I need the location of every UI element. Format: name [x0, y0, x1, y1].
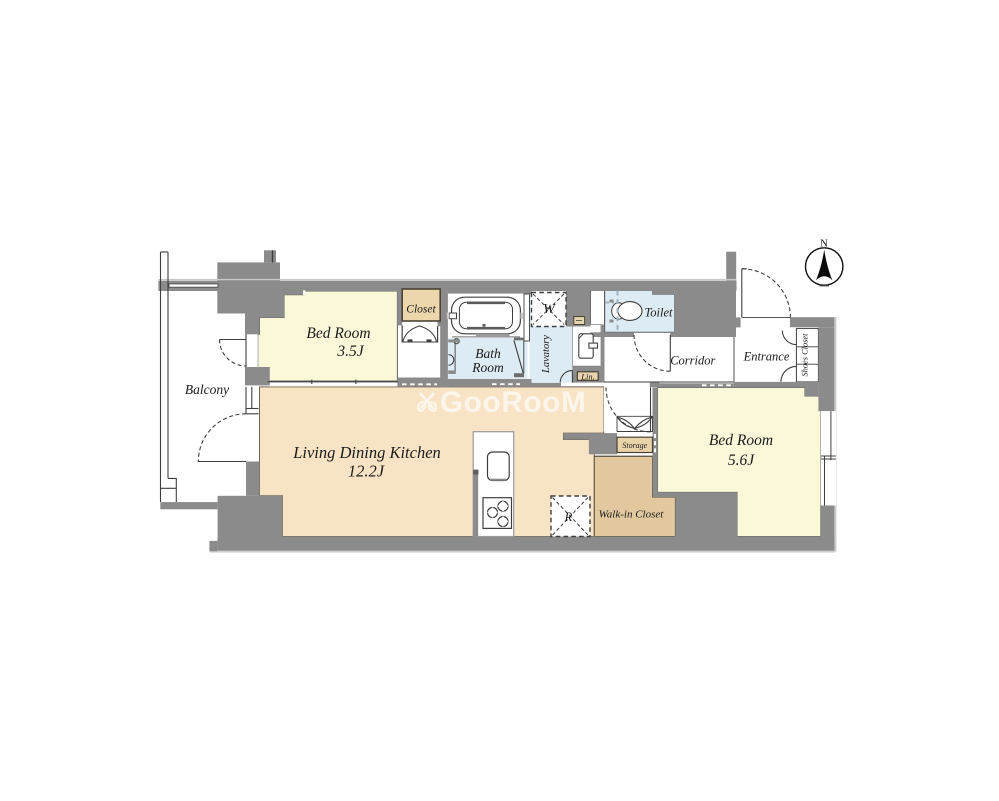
svg-text:GooRooM: GooRooM: [440, 386, 587, 419]
svg-text:W: W: [543, 302, 556, 317]
svg-text:Lavatory: Lavatory: [541, 335, 552, 374]
svg-text:Toilet: Toilet: [644, 306, 673, 320]
svg-text:Closet: Closet: [406, 304, 436, 316]
svg-text:Living Dining Kitchen: Living Dining Kitchen: [292, 443, 441, 462]
svg-text:Entrance: Entrance: [743, 350, 790, 364]
svg-text:3.5J: 3.5J: [336, 343, 364, 360]
svg-text:5.6J: 5.6J: [728, 452, 755, 469]
svg-text:Storage: Storage: [622, 441, 647, 450]
svg-text:Balcony: Balcony: [185, 382, 229, 397]
svg-text:Bed Room: Bed Room: [709, 432, 773, 449]
svg-text:N: N: [820, 239, 828, 250]
svg-text:R: R: [564, 510, 573, 524]
svg-text:Bath: Bath: [475, 346, 501, 361]
svg-text:Lin.: Lin.: [580, 372, 594, 382]
svg-text:Room: Room: [471, 360, 504, 375]
svg-text:Corridor: Corridor: [670, 354, 715, 368]
svg-text:Bed Room: Bed Room: [306, 325, 370, 342]
svg-text:Shoes Closet: Shoes Closet: [801, 333, 810, 377]
svg-text:Walk-in Closet: Walk-in Closet: [599, 509, 665, 521]
svg-text:12.2J: 12.2J: [348, 462, 385, 481]
